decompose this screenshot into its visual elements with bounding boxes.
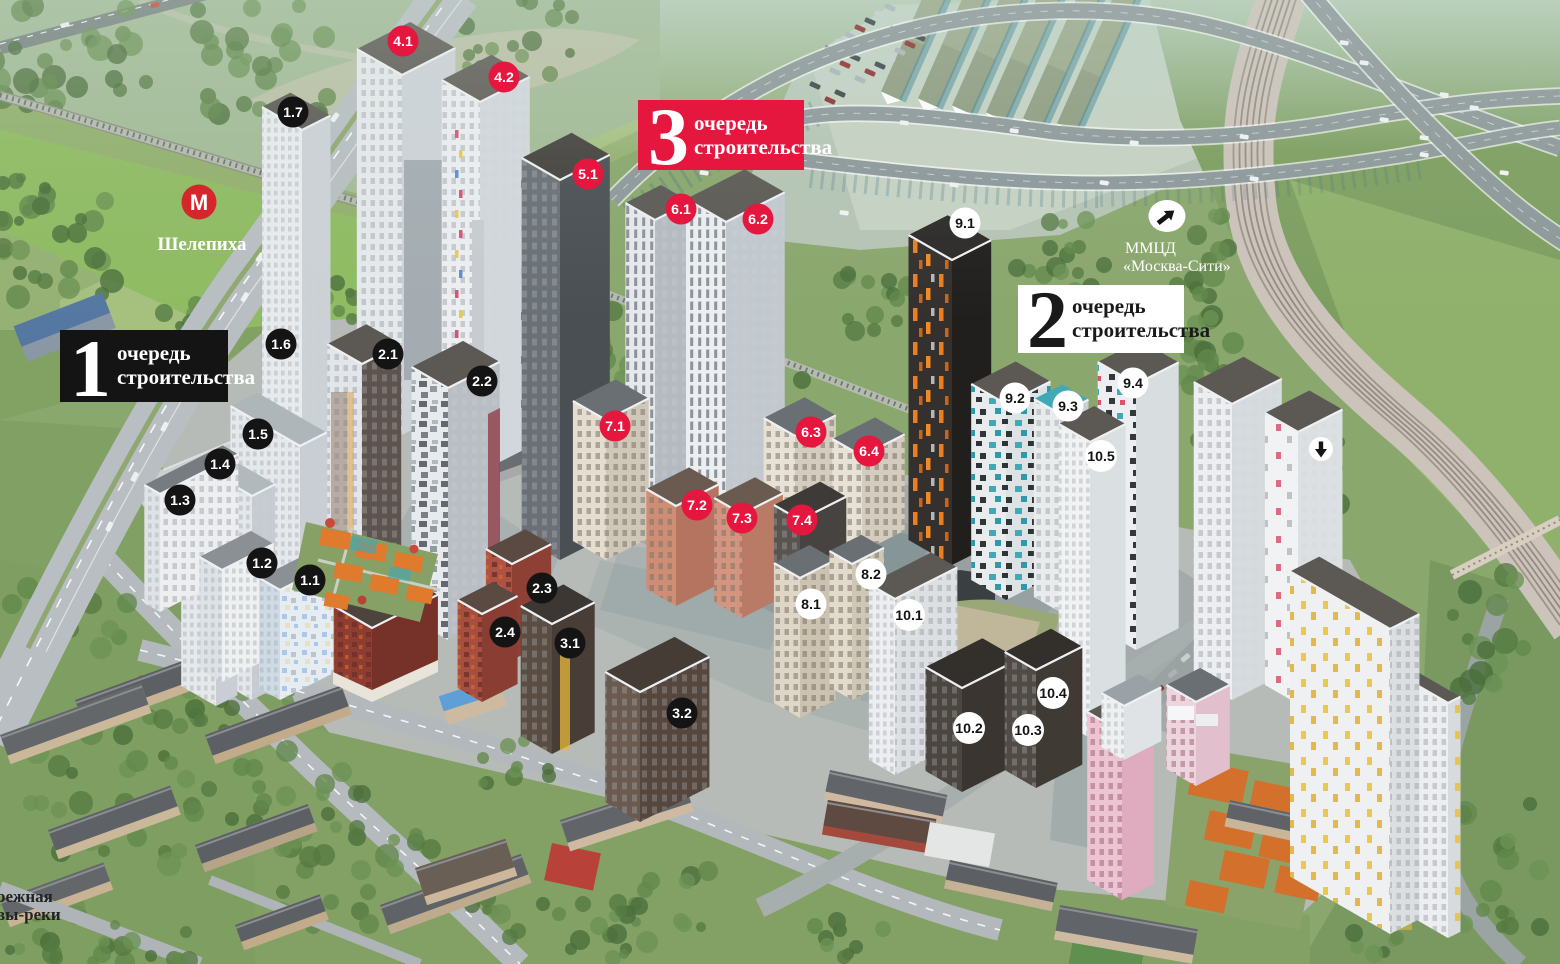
svg-text:3.2: 3.2: [672, 706, 692, 722]
svg-text:7.4: 7.4: [792, 513, 812, 529]
svg-text:очередь: очередь: [117, 341, 191, 365]
svg-text:ММЦД: ММЦД: [1125, 240, 1176, 257]
svg-text:9.2: 9.2: [1005, 391, 1025, 407]
svg-text:1.1: 1.1: [300, 573, 320, 589]
svg-text:10.2: 10.2: [955, 721, 983, 737]
svg-text:3.1: 3.1: [560, 636, 580, 652]
svg-text:1: 1: [70, 323, 111, 414]
svg-text:6.1: 6.1: [671, 202, 691, 218]
svg-text:М: М: [190, 190, 208, 215]
svg-text:строительства: строительства: [1072, 318, 1211, 342]
svg-text:2.2: 2.2: [472, 374, 492, 390]
svg-text:6.3: 6.3: [801, 425, 821, 441]
svg-text:2.3: 2.3: [532, 581, 552, 597]
svg-text:9.1: 9.1: [955, 216, 975, 232]
svg-text:«Москва-Сити»: «Москва-Сити»: [1123, 258, 1231, 275]
svg-text:очередь: очередь: [1072, 294, 1146, 318]
svg-text:10.3: 10.3: [1014, 723, 1042, 739]
svg-text:10.4: 10.4: [1039, 686, 1067, 702]
svg-text:3: 3: [648, 91, 689, 182]
svg-text:режная: режная: [0, 887, 53, 906]
svg-text:5.1: 5.1: [578, 167, 598, 183]
svg-text:строительства: строительства: [117, 365, 256, 389]
svg-text:Шелепиха: Шелепиха: [157, 234, 247, 255]
svg-text:4.1: 4.1: [393, 34, 413, 50]
svg-text:1.6: 1.6: [271, 337, 291, 353]
svg-text:10.5: 10.5: [1087, 449, 1115, 465]
svg-text:4.2: 4.2: [494, 70, 514, 86]
svg-text:6.2: 6.2: [748, 212, 768, 228]
svg-text:строительства: строительства: [694, 135, 833, 159]
svg-text:1.4: 1.4: [210, 457, 230, 473]
svg-text:вы-реки: вы-реки: [0, 905, 61, 924]
svg-text:8.2: 8.2: [861, 567, 881, 583]
svg-text:2: 2: [1027, 274, 1068, 365]
svg-text:8.1: 8.1: [801, 597, 821, 613]
svg-text:1.5: 1.5: [248, 427, 268, 443]
svg-text:2.4: 2.4: [495, 625, 515, 641]
svg-text:7.2: 7.2: [687, 498, 707, 514]
svg-text:очередь: очередь: [694, 111, 768, 135]
svg-text:1.7: 1.7: [283, 105, 303, 121]
svg-text:7.1: 7.1: [605, 419, 625, 435]
svg-text:10.1: 10.1: [895, 608, 923, 624]
svg-text:2.1: 2.1: [378, 347, 398, 363]
svg-text:1.2: 1.2: [252, 556, 272, 572]
svg-text:1.3: 1.3: [170, 493, 190, 509]
svg-text:6.4: 6.4: [859, 444, 879, 460]
svg-text:9.3: 9.3: [1058, 399, 1078, 415]
svg-text:9.4: 9.4: [1123, 376, 1143, 392]
svg-text:7.3: 7.3: [732, 511, 752, 527]
